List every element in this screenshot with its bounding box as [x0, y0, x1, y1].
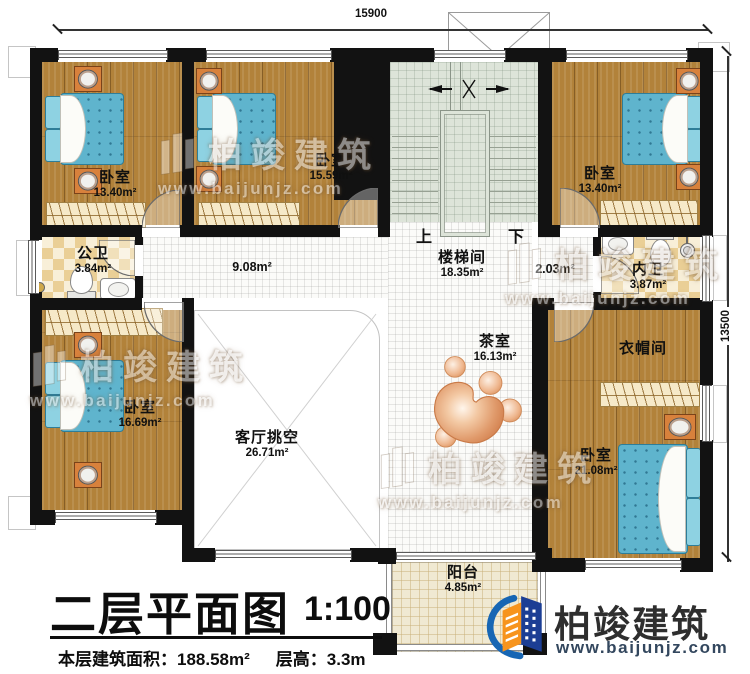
window	[58, 50, 168, 60]
room-label-ensuite-bathroom: 内卫3.87m²	[630, 262, 666, 292]
wardrobe-cloakroom	[600, 382, 700, 407]
brand-logo-icon	[486, 590, 548, 660]
floor-plan-canvas: 卧室13.40m² 卧室15.59m² 卧室13.40m² 公卫3.84m² 9…	[0, 0, 750, 674]
title-underline	[50, 636, 382, 639]
balcony-post	[534, 548, 552, 572]
wall	[30, 48, 42, 240]
stair-up-label: 上	[416, 223, 432, 247]
wall	[532, 310, 548, 558]
wall	[180, 225, 340, 237]
wall	[350, 548, 378, 562]
wall	[135, 276, 143, 298]
window	[702, 385, 712, 442]
room-label-bedroom-top-left: 卧室13.40m²	[94, 170, 137, 200]
door-bedroom-bottom-right	[554, 302, 594, 342]
nightstand	[664, 414, 696, 440]
wall	[42, 225, 142, 237]
room-label-tea-room: 茶室16.13m²	[474, 334, 517, 364]
door-bedroom-top-middle	[338, 188, 378, 228]
wall	[504, 48, 566, 62]
room-label-stairwell: 楼梯间18.35m²	[438, 250, 486, 280]
sink-basin	[608, 237, 628, 251]
wall	[155, 510, 182, 525]
wall	[598, 225, 713, 237]
plan-subtitle: 本层建筑面积：188.58m²层高：3.3m	[58, 645, 366, 670]
room-label-vestibule: 2.03m²	[535, 262, 575, 276]
nightstand	[74, 462, 102, 488]
floor-area-value: 188.58m²	[177, 650, 250, 669]
window	[55, 512, 157, 523]
stair-down-label: 下	[508, 223, 524, 247]
balcony-door-window	[396, 552, 536, 560]
door-bedroom-middle-left	[144, 302, 184, 342]
wall	[700, 48, 713, 235]
room-label-living-void: 客厅挑空26.71m²	[235, 430, 299, 460]
nightstand	[196, 68, 222, 94]
tea-table-stone	[408, 352, 526, 470]
floor-height-value: 3.3m	[327, 650, 366, 669]
wall	[30, 510, 55, 525]
wall	[680, 558, 713, 572]
wall	[593, 292, 601, 298]
window	[566, 50, 688, 60]
wall	[182, 62, 194, 237]
bed-pillow	[686, 448, 701, 498]
window	[585, 560, 682, 570]
wall	[378, 200, 390, 237]
wall	[594, 298, 700, 310]
room-label-bedroom-middle-left: 卧室16.69m²	[119, 400, 162, 430]
stair-direction-arrows	[414, 78, 524, 100]
wall	[135, 237, 143, 245]
brand-website: www.baijunjz.com	[556, 638, 728, 658]
dimension-top-value: 15900	[352, 8, 390, 20]
wall	[548, 558, 585, 572]
nightstand	[676, 68, 702, 94]
window	[434, 50, 506, 60]
wall	[30, 292, 42, 525]
nightstand	[74, 66, 102, 92]
room-label-bedroom-bottom-right: 卧室21.08m²	[575, 448, 618, 478]
room-label-cloakroom: 衣帽间	[619, 341, 667, 358]
window	[215, 550, 352, 560]
wall	[538, 62, 552, 237]
floor-area-label: 本层建筑面积：	[58, 650, 177, 669]
room-label-bedroom-top-right: 卧室13.40m²	[579, 166, 622, 196]
window	[702, 235, 712, 302]
plan-scale: 1:100	[304, 590, 391, 629]
room-label-public-bathroom: 公卫3.84m²	[75, 246, 111, 276]
wall	[593, 237, 601, 256]
window	[28, 240, 39, 294]
wall	[532, 298, 554, 310]
wall	[182, 548, 215, 562]
nightstand	[74, 332, 102, 358]
balcony-post	[378, 548, 396, 564]
plan-title: 二层平面图	[50, 578, 290, 644]
room-label-hallway: 9.08m²	[232, 260, 272, 274]
dimension-line-top	[58, 29, 708, 31]
door-bedroom-top-left	[142, 190, 180, 228]
window-sill	[713, 385, 727, 443]
wall	[700, 440, 713, 570]
floor-height-label: 层高：	[276, 650, 327, 669]
window-sill	[713, 235, 727, 301]
stair-landing	[440, 110, 490, 237]
wardrobe	[600, 200, 698, 226]
sink-basin	[108, 282, 129, 297]
stair-treads-left	[392, 126, 438, 218]
nightstand	[676, 164, 702, 190]
stair-treads-right	[490, 126, 536, 218]
room-label-bedroom-top-middle: 卧室15.59m²	[310, 153, 353, 183]
window	[206, 50, 332, 60]
room-label-balcony: 阳台4.85m²	[445, 565, 481, 595]
dimension-right-value: 13500	[720, 307, 732, 345]
shower-head	[680, 243, 695, 258]
wall	[166, 48, 206, 62]
wall	[700, 300, 713, 385]
wall	[42, 298, 142, 310]
nightstand	[196, 166, 222, 192]
bed-pillow	[686, 498, 701, 546]
bed-duvet	[658, 446, 686, 552]
bed-duvet	[662, 95, 688, 163]
